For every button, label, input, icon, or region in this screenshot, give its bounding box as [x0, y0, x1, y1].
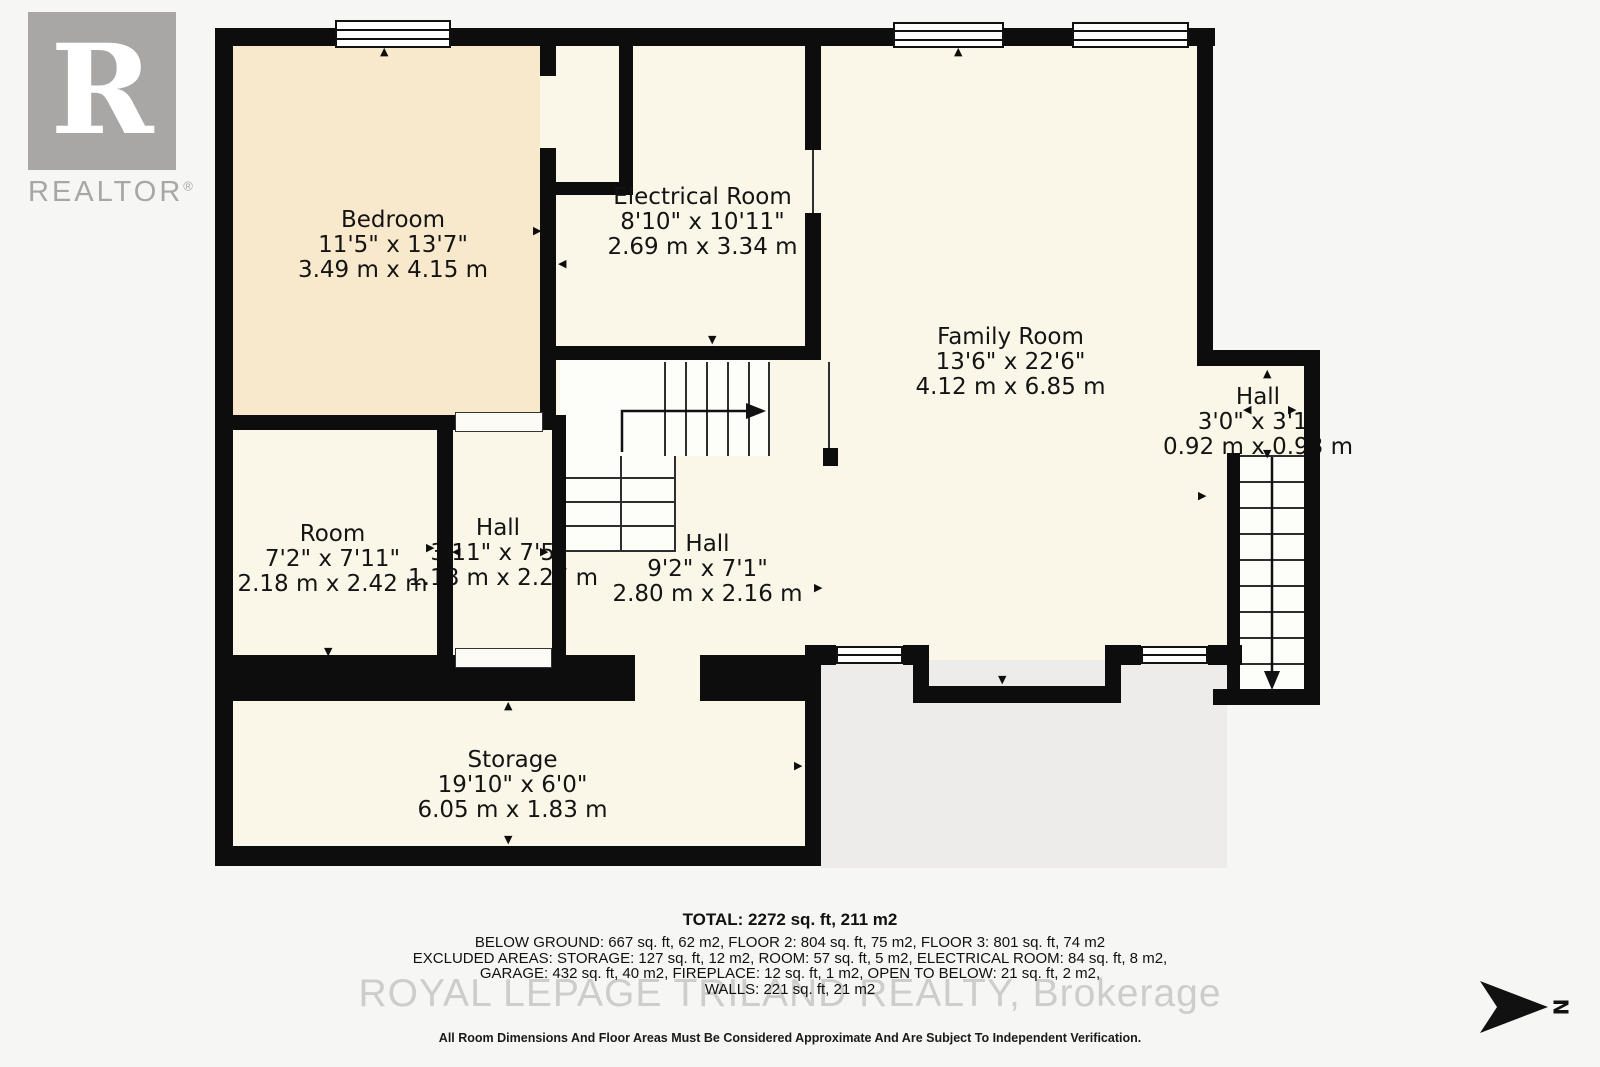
registered-trademark-icon: ®	[183, 178, 196, 193]
wall-electrical-family-a	[805, 28, 821, 150]
wall-family-bottom-low	[913, 686, 1105, 703]
storage-door-gap	[635, 655, 700, 702]
room-dims-imperial: 3'0" x 3'1"	[1158, 410, 1358, 435]
dimension-arrow-icon: ▶	[1198, 490, 1206, 501]
area-summary: TOTAL: 2272 sq. ft, 211 m2 BELOW GROUND:…	[0, 910, 1580, 1045]
window-family-bottom-2	[1141, 646, 1208, 664]
north-compass: N	[1478, 978, 1588, 1038]
dimension-arrow-icon: ▲	[1263, 368, 1271, 379]
stair-tread	[560, 477, 676, 479]
dimension-arrow-icon: ▶	[1288, 404, 1296, 415]
wall-bumpout-top	[1197, 350, 1320, 366]
dimension-arrow-icon: ◀	[1243, 404, 1251, 415]
wall-bedroom-bottom-a	[215, 415, 455, 430]
wall-outer-right-upper	[1197, 28, 1213, 366]
wall-room-hall-divider	[437, 422, 453, 662]
floor-areas: BELOW GROUND: 667 sq. ft, 62 m2, FLOOR 2…	[0, 935, 1580, 951]
room-name: Storage	[360, 748, 665, 773]
window-family-top-2	[1072, 22, 1189, 48]
dimension-arrow-icon: ▲	[380, 46, 388, 57]
dimension-arrow-icon: ▼	[324, 646, 332, 657]
room-dims-metric: 2.69 m x 3.34 m	[565, 235, 840, 260]
window-family-bottom-1	[836, 646, 903, 664]
room-name: Bedroom	[240, 208, 546, 233]
excluded-areas-3: WALLS: 221 sq. ft, 21 m2	[0, 982, 1580, 998]
room-dims-metric: 3.49 m x 4.15 m	[240, 258, 546, 283]
wall-closet-right	[619, 40, 633, 182]
hall-92-label: Hall 9'2" x 7'1" 2.80 m x 2.16 m	[575, 532, 840, 607]
wall-bumpout-bottom	[1213, 689, 1320, 705]
dimension-arrow-icon: ▶	[806, 296, 814, 307]
wall-bedroom-right-a	[540, 40, 556, 76]
wall-electrical-bottom	[548, 346, 821, 360]
room-label: Room 7'2" x 7'11" 2.18 m x 2.42 m	[230, 522, 435, 597]
room-name: Room	[230, 522, 435, 547]
room-dims-imperial: 19'10" x 6'0"	[360, 773, 665, 798]
stair-tread	[560, 501, 676, 503]
door-bedroom-hall	[455, 412, 543, 432]
room-name: Family Room	[858, 325, 1163, 350]
room-dims-imperial: 8'10" x 10'11"	[565, 210, 840, 235]
storage-label: Storage 19'10" x 6'0" 6.05 m x 1.83 m	[360, 748, 665, 823]
room-dims-metric: 4.12 m x 6.85 m	[858, 375, 1163, 400]
dimension-arrow-icon: ▼	[1263, 448, 1271, 459]
dimension-arrow-icon: ◀	[222, 762, 230, 773]
hall-bumpout-label: Hall 3'0" x 3'1" 0.92 m x 0.93 m	[1158, 385, 1358, 460]
realtor-logo-letter: R	[50, 29, 153, 153]
wall-family-bottom-1	[805, 645, 836, 665]
room-name: Hall	[1158, 385, 1358, 410]
door-opening-line	[828, 362, 830, 452]
stair-tread	[560, 525, 676, 527]
wall-storage-top-a	[215, 655, 635, 701]
excluded-areas-1: EXCLUDED AREAS: STORAGE: 127 sq. ft, 12 …	[0, 951, 1580, 967]
room-dims-imperial: 13'6" x 22'6"	[858, 350, 1163, 375]
room-dims-metric: 6.05 m x 1.83 m	[360, 798, 665, 823]
stair-down-arrow-icon	[1261, 457, 1285, 693]
dimension-arrow-icon: ▶	[540, 546, 548, 557]
wall-hall-right	[552, 430, 566, 662]
dimension-arrow-icon: ▼	[708, 334, 716, 345]
disclaimer: All Room Dimensions And Floor Areas Must…	[0, 1031, 1580, 1045]
realtor-logo: R REALTOR®	[28, 12, 196, 209]
room-dims-imperial: 11'5" x 13'7"	[240, 233, 546, 258]
wall-landing-stub	[823, 448, 838, 466]
wall-storage-bottom	[215, 846, 821, 866]
dimension-arrow-icon: ▼	[504, 834, 512, 845]
dimension-arrow-icon: ▶	[794, 760, 802, 771]
north-arrow-icon	[1478, 978, 1550, 1036]
wall-bedroom-bottom-b	[543, 415, 566, 430]
dimension-arrow-icon: ◀	[452, 546, 460, 557]
stair-up-arrow-icon	[590, 398, 780, 460]
total-area: TOTAL: 2272 sq. ft, 211 m2	[0, 910, 1580, 930]
door-hall-storage	[455, 648, 552, 668]
wall-stairs-left	[1227, 453, 1240, 689]
bedroom-label: Bedroom 11'5" x 13'7" 3.49 m x 4.15 m	[240, 208, 546, 283]
dimension-arrow-icon: ▲	[954, 46, 962, 57]
north-label: N	[1548, 999, 1572, 1016]
excluded-areas-2: GARAGE: 432 sq. ft, 40 m2, FIREPLACE: 12…	[0, 966, 1580, 982]
wall-storage-right	[805, 645, 821, 866]
electrical-room-label: Electrical Room 8'10" x 10'11" 2.69 m x …	[565, 185, 840, 260]
family-room-label: Family Room 13'6" x 22'6" 4.12 m x 6.85 …	[858, 325, 1163, 400]
room-name: Hall	[575, 532, 840, 557]
wall-outer-left	[215, 28, 233, 866]
dimension-arrow-icon: ▲	[504, 700, 512, 711]
realtor-wordmark: REALTOR®	[28, 176, 196, 209]
floor-plan-page: R REALTOR®	[0, 0, 1600, 1067]
room-dims-imperial: 9'2" x 7'1"	[575, 557, 840, 582]
room-dims-imperial: 7'2" x 7'11"	[230, 547, 435, 572]
room-dims-metric: 2.80 m x 2.16 m	[575, 582, 840, 607]
bedroom-closet-opening	[540, 76, 556, 148]
realtor-logo-icon: R	[28, 12, 176, 170]
wall-storage-top-b	[700, 655, 821, 701]
wall-bumpout-right	[1304, 350, 1320, 705]
dimension-arrow-icon: ▼	[998, 674, 1006, 685]
wall-family-bottom-3	[1105, 645, 1141, 665]
room-name: Electrical Room	[565, 185, 840, 210]
room-dims-metric: 2.18 m x 2.42 m	[230, 572, 435, 597]
dimension-arrow-icon: ◀	[222, 222, 230, 233]
window-family-top-1	[893, 22, 1004, 48]
window-bedroom-top	[335, 20, 451, 48]
